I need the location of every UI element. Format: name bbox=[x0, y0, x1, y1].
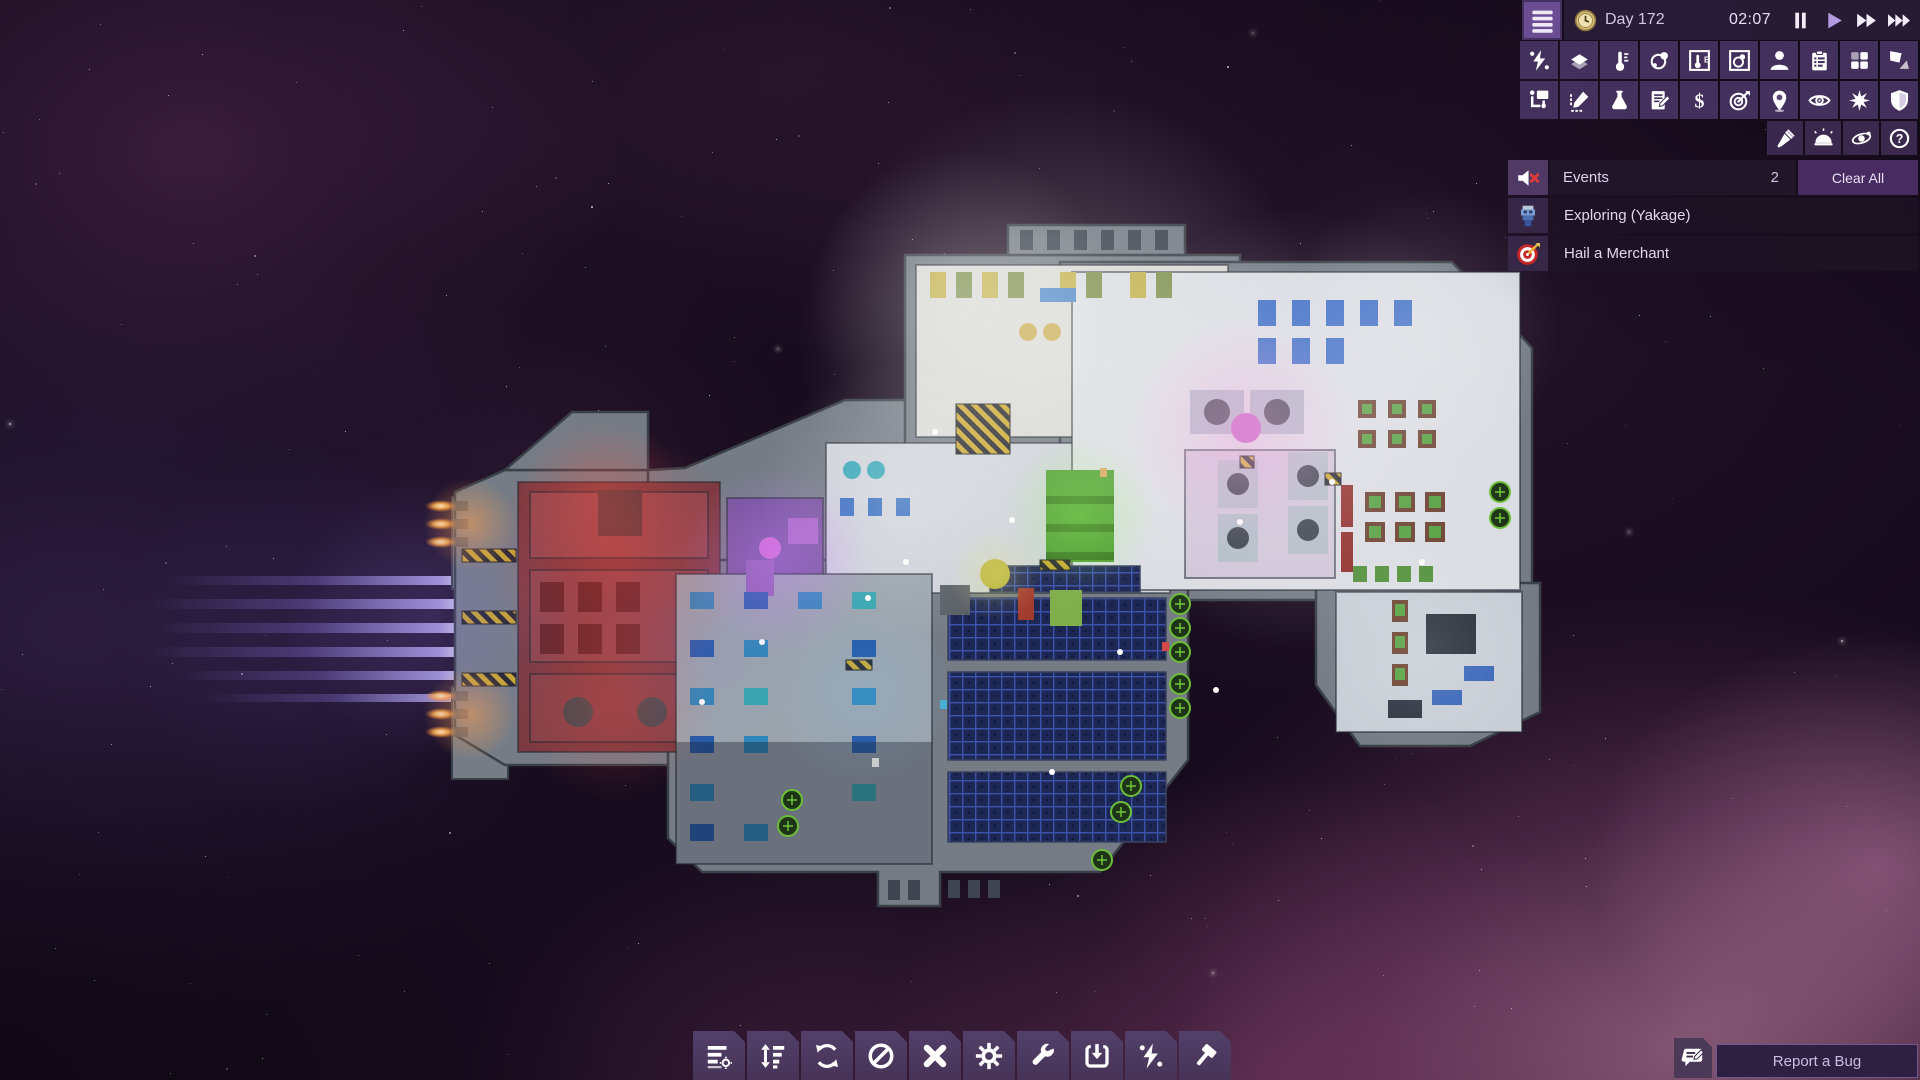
task-list-icon[interactable] bbox=[1800, 41, 1838, 79]
operations-icon[interactable] bbox=[963, 1031, 1015, 1080]
paint-icon[interactable] bbox=[1767, 121, 1803, 155]
events-list: Exploring (Yakage)Hail a Merchant bbox=[1508, 198, 1918, 271]
temperature-room-icon[interactable]: E bbox=[1680, 41, 1718, 79]
zones-icon[interactable] bbox=[1880, 41, 1918, 79]
rooms-icon[interactable] bbox=[1840, 41, 1878, 79]
gas-room-icon[interactable] bbox=[1720, 41, 1758, 79]
event-item-label[interactable]: Hail a Merchant bbox=[1550, 236, 1918, 271]
clear-all-button[interactable]: Clear All bbox=[1798, 160, 1918, 195]
time-label: 02:07 bbox=[1729, 11, 1777, 29]
dome-icon[interactable] bbox=[1805, 121, 1841, 155]
time-bar: Day 172 02:07 bbox=[1564, 0, 1920, 40]
trade-icon[interactable]: $ bbox=[1680, 81, 1718, 119]
combat-icon[interactable] bbox=[1840, 81, 1878, 119]
events-title-bar: Events 2 bbox=[1550, 160, 1796, 195]
power-grid-icon[interactable] bbox=[1125, 1031, 1177, 1080]
crew-icon[interactable] bbox=[1760, 41, 1798, 79]
events-panel: Events 2 Clear All Exploring (Yakage)Hai… bbox=[1508, 160, 1918, 271]
forbid-icon[interactable] bbox=[855, 1031, 907, 1080]
gas-overlay-icon[interactable] bbox=[1640, 41, 1678, 79]
nav-beacon-icon[interactable] bbox=[1760, 81, 1798, 119]
feedback-bubble-icon bbox=[1674, 1038, 1712, 1078]
orbit-icon[interactable] bbox=[1843, 121, 1879, 155]
top-hud: Day 172 02:07 bbox=[1522, 0, 1920, 40]
event-item: Hail a Merchant bbox=[1508, 236, 1918, 271]
manage-list-icon[interactable] bbox=[693, 1031, 745, 1080]
overlay-toolbar-row2: $ bbox=[1520, 81, 1918, 119]
missions-icon[interactable] bbox=[1720, 81, 1758, 119]
overlay-toolbar-row1: E bbox=[1520, 41, 1918, 79]
import-goods-icon[interactable] bbox=[1071, 1031, 1123, 1080]
bug-report: Report a Bug bbox=[1674, 1038, 1918, 1078]
overlay-toolbar-row3: ? bbox=[1767, 121, 1917, 155]
shield-icon[interactable] bbox=[1880, 81, 1918, 119]
repair-icon[interactable] bbox=[1017, 1031, 1069, 1080]
logistics-icon[interactable] bbox=[1520, 81, 1558, 119]
pause-button[interactable] bbox=[1784, 0, 1817, 40]
explorer-icon bbox=[1508, 198, 1548, 233]
floor-overlay-icon[interactable] bbox=[1560, 41, 1598, 79]
build-icon[interactable] bbox=[1179, 1031, 1231, 1080]
cycle-icon[interactable] bbox=[801, 1031, 853, 1080]
menu-button[interactable] bbox=[1522, 0, 1562, 40]
build-toolbar bbox=[693, 1031, 1231, 1080]
play-button[interactable] bbox=[1817, 0, 1850, 40]
report-a-bug-button[interactable]: Report a Bug bbox=[1716, 1044, 1918, 1078]
mute-events-button[interactable] bbox=[1508, 160, 1548, 195]
svg-text:E: E bbox=[1703, 54, 1709, 64]
events-title: Events bbox=[1563, 169, 1609, 186]
contracts-icon[interactable] bbox=[1640, 81, 1678, 119]
cancel-icon[interactable] bbox=[909, 1031, 961, 1080]
speed-controls bbox=[1784, 0, 1916, 40]
temperature-overlay-icon[interactable] bbox=[1600, 41, 1638, 79]
visibility-icon[interactable] bbox=[1800, 81, 1838, 119]
events-header: Events 2 Clear All bbox=[1508, 160, 1918, 195]
draw-plan-icon[interactable] bbox=[1560, 81, 1598, 119]
event-item: Exploring (Yakage) bbox=[1508, 198, 1918, 233]
clock-icon bbox=[1573, 8, 1598, 33]
svg-text:?: ? bbox=[1895, 132, 1903, 146]
fastest-button[interactable] bbox=[1883, 0, 1916, 40]
svg-text:$: $ bbox=[1694, 90, 1704, 112]
day-label: Day 172 bbox=[1605, 11, 1665, 29]
target-icon bbox=[1508, 236, 1548, 271]
event-item-label[interactable]: Exploring (Yakage) bbox=[1550, 198, 1918, 233]
priority-list-icon[interactable] bbox=[747, 1031, 799, 1080]
power-overlay-icon[interactable] bbox=[1520, 41, 1558, 79]
fast-button[interactable] bbox=[1850, 0, 1883, 40]
research-icon[interactable] bbox=[1600, 81, 1638, 119]
events-count: 2 bbox=[1771, 169, 1783, 186]
help-icon[interactable]: ? bbox=[1881, 121, 1917, 155]
